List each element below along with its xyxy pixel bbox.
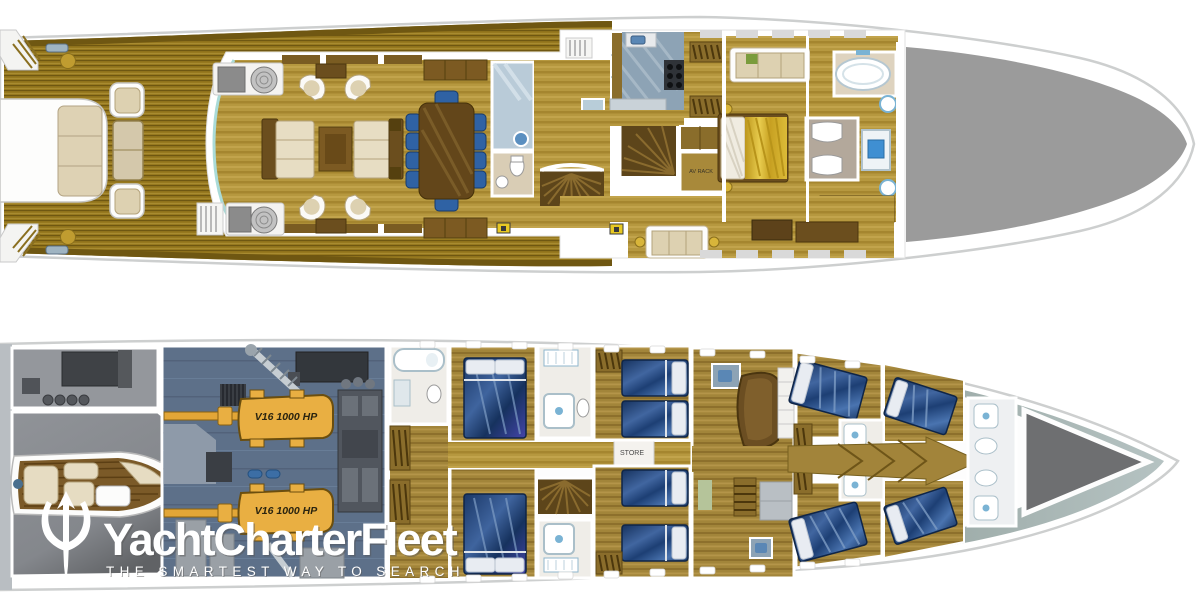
- svg-text:AV RACK: AV RACK: [689, 169, 713, 175]
- svg-text:THE SMARTEST WAY TO SEARCH: THE SMARTEST WAY TO SEARCH: [106, 564, 465, 579]
- svg-text:V16 1000 HP: V16 1000 HP: [255, 411, 318, 423]
- svg-text:STORE: STORE: [620, 450, 644, 457]
- svg-text:YachtCharterFleet: YachtCharterFleet: [103, 514, 458, 565]
